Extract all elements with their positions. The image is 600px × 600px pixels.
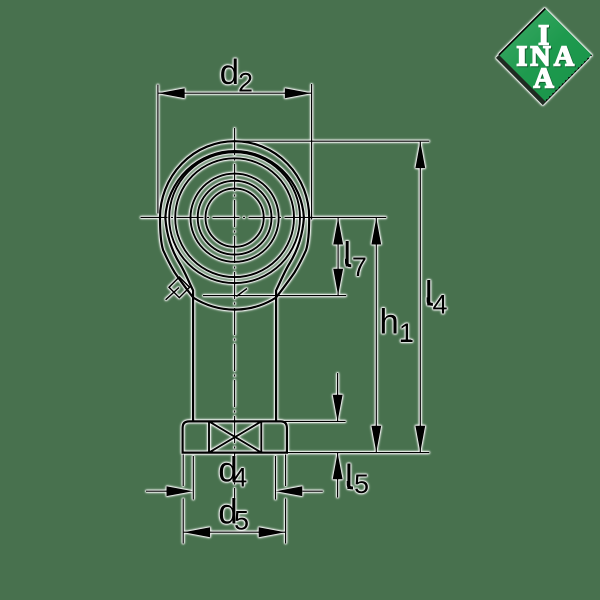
svg-text:l: l (345, 458, 353, 497)
svg-text:A: A (534, 63, 557, 94)
svg-text:5: 5 (234, 506, 249, 536)
svg-text:d: d (220, 53, 239, 92)
svg-text:1: 1 (399, 318, 414, 348)
svg-text:5: 5 (354, 469, 369, 499)
svg-text:4: 4 (232, 463, 247, 493)
svg-text:l: l (425, 274, 433, 313)
svg-text:l: l (343, 236, 351, 275)
svg-text:h: h (379, 302, 398, 341)
svg-text:7: 7 (352, 252, 367, 282)
svg-text:2: 2 (238, 68, 253, 98)
svg-text:4: 4 (433, 290, 448, 320)
